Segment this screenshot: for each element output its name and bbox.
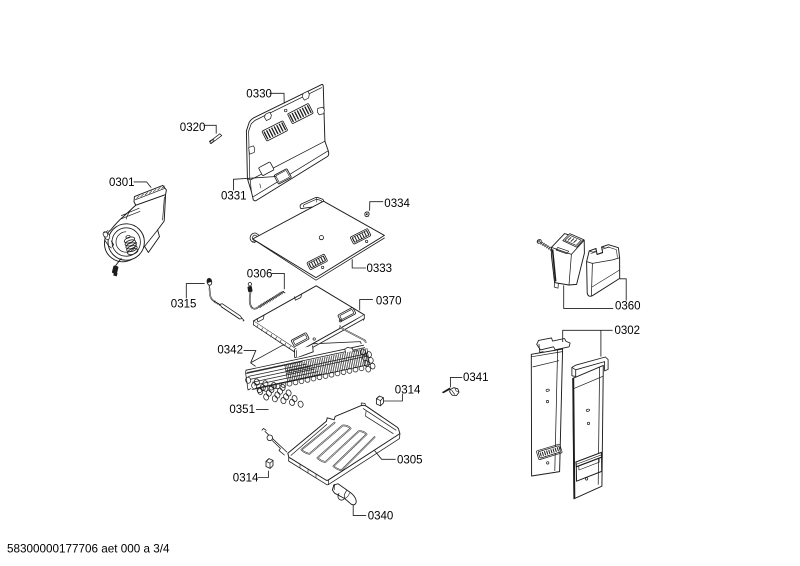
svg-text:0302: 0302	[615, 325, 641, 337]
svg-text:0342: 0342	[217, 345, 243, 357]
svg-text:0314: 0314	[395, 385, 421, 397]
svg-text:0306: 0306	[247, 269, 273, 281]
svg-text:0330: 0330	[246, 88, 272, 100]
svg-text:0320: 0320	[180, 122, 206, 134]
svg-text:0360: 0360	[615, 300, 641, 312]
svg-text:0340: 0340	[368, 511, 394, 523]
svg-text:0334: 0334	[384, 198, 410, 210]
svg-text:0351: 0351	[229, 404, 255, 416]
svg-text:58300000177706 aet 000 a 3/4: 58300000177706 aet 000 a 3/4	[7, 543, 170, 556]
svg-text:0305: 0305	[397, 454, 423, 466]
svg-text:0331: 0331	[221, 191, 247, 203]
svg-text:0341: 0341	[463, 372, 489, 384]
svg-text:0314: 0314	[233, 472, 259, 484]
svg-text:0315: 0315	[171, 299, 197, 311]
svg-text:0301: 0301	[109, 177, 135, 189]
svg-text:0370: 0370	[376, 296, 402, 308]
svg-text:0333: 0333	[367, 263, 393, 275]
